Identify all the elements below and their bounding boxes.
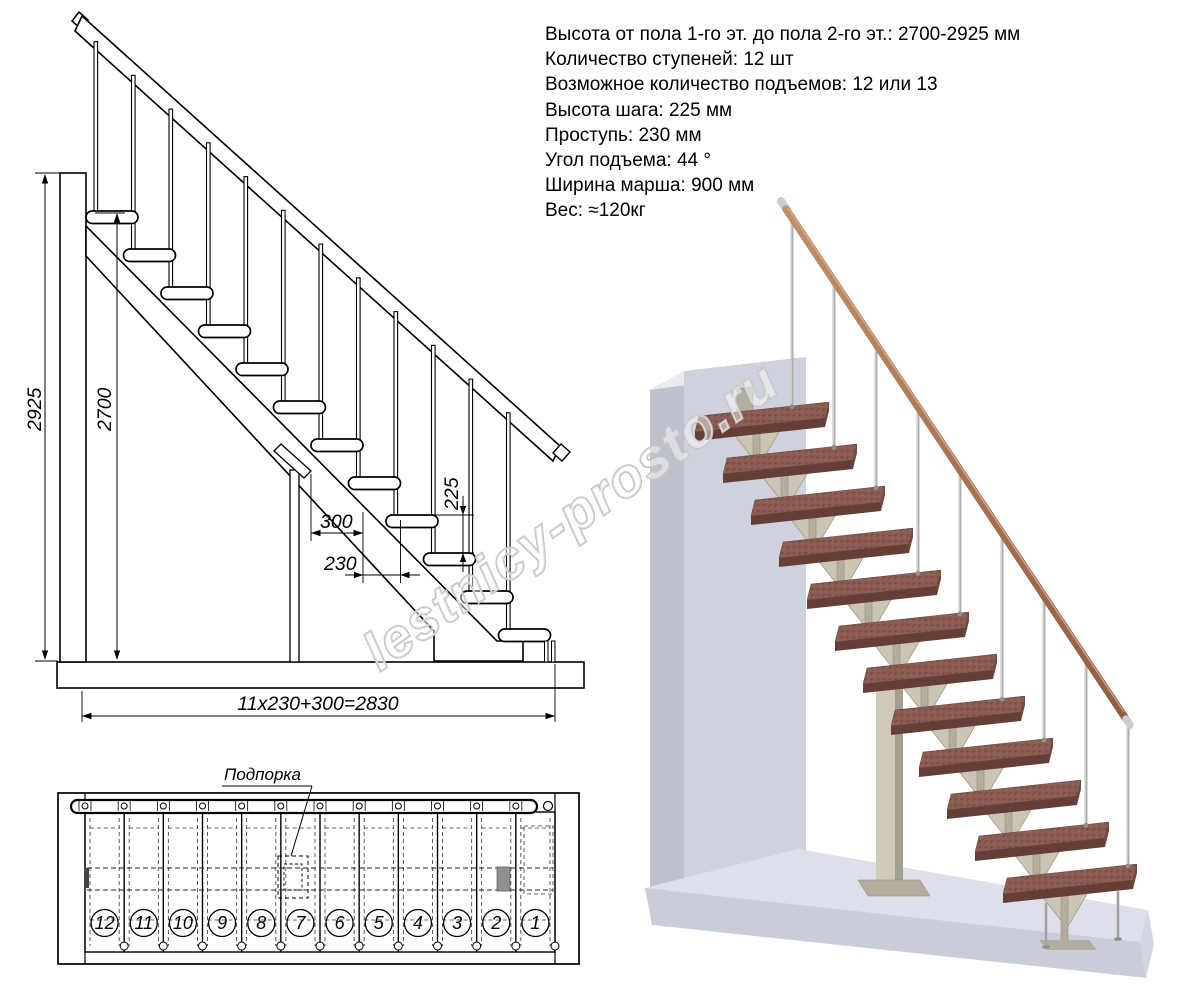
floor-base-beam <box>57 662 584 688</box>
step-number-2: 2 <box>490 913 501 933</box>
plan-bolt-mark <box>120 942 128 950</box>
plan-bolt-mark <box>473 942 481 950</box>
step-number-8: 8 <box>256 913 266 933</box>
plan-baluster-mark <box>435 803 441 809</box>
specs-block: Высота от пола 1-го эт. до пола 2-го эт.… <box>545 22 1020 224</box>
elevation-side-view: 2925 2700 300 230 225 11x230+300=2830 <box>24 12 584 722</box>
dim-arrow <box>42 174 48 184</box>
staircase-drawing-page: 2925 2700 300 230 225 11x230+300=2830 По… <box>0 0 1191 993</box>
plan-bolt-mark <box>238 942 246 950</box>
baluster-foot <box>958 612 963 617</box>
left-anchor-mark <box>84 868 89 888</box>
step-2d <box>236 363 288 376</box>
plan-baluster-mark <box>356 803 362 809</box>
step-number-1: 1 <box>530 913 540 933</box>
dim-arrow <box>82 713 92 719</box>
plan-shapes <box>58 786 579 964</box>
step-2d <box>161 287 213 300</box>
baluster-foot <box>1042 738 1047 743</box>
baluster-foot <box>832 445 837 450</box>
plan-bolt-mark <box>355 942 363 950</box>
dim-arrow <box>42 651 48 661</box>
plan-baluster-mark <box>395 803 401 809</box>
render-3d-staircase <box>645 201 1154 978</box>
baluster-foot <box>790 404 795 409</box>
bottom-step-post <box>552 641 556 662</box>
dim-arrow <box>114 651 120 661</box>
elevation-shapes <box>35 12 584 722</box>
plan-baluster-mark <box>239 803 245 809</box>
step-number-11: 11 <box>134 913 153 933</box>
plan-bolt-mark <box>512 942 520 950</box>
plan-baluster-mark <box>200 803 206 809</box>
dim-floor-height-2700: 2700 <box>94 387 116 432</box>
leg-foot <box>1114 937 1122 941</box>
support-column <box>876 688 895 884</box>
spec-line-height-range: Высота от пола 1-го эт. до пола 2-го эт.… <box>545 22 1020 47</box>
dim-going-230: 230 <box>323 553 357 575</box>
spec-line-rise-height: Высота шага: 225 мм <box>545 98 1020 123</box>
step-2d <box>386 515 438 528</box>
plan-baluster-mark <box>121 803 127 809</box>
baluster-foot <box>1084 823 1089 828</box>
baluster-foot <box>1126 864 1131 869</box>
plan-baluster-mark <box>474 803 480 809</box>
mid-support-post <box>290 470 299 662</box>
dim-total-height-2925: 2925 <box>24 387 46 432</box>
step-2d <box>499 629 551 642</box>
baluster-2d <box>132 75 136 251</box>
plan-top-view: Подпорка 12 11 10 9 8 7 6 5 4 3 2 1 <box>58 765 579 964</box>
plan-bolt-mark <box>199 942 207 950</box>
spec-line-angle: Угол подъема: 44 ° <box>545 148 1020 173</box>
dim-total-run: 11x230+300=2830 <box>237 693 398 715</box>
plan-bolt-mark <box>434 942 442 950</box>
plan-bolt-mark <box>394 942 402 950</box>
spec-line-width: Ширина марша: 900 мм <box>545 173 1020 198</box>
baluster-foot <box>874 486 879 491</box>
baluster-foot <box>916 571 921 576</box>
step-2d <box>311 439 363 452</box>
plan-bolt-mark <box>159 942 167 950</box>
step-number-7: 7 <box>295 913 306 933</box>
handrail-2d <box>75 16 560 461</box>
spec-line-rises-count: Возможное количество подъемов: 12 или 13 <box>545 72 1020 97</box>
plan-bolt-mark <box>316 942 324 950</box>
plan-baluster-mark <box>317 803 323 809</box>
baluster-foot <box>1000 697 1005 702</box>
step-number-10: 10 <box>173 913 193 933</box>
plan-baluster-mark <box>278 803 284 809</box>
step-number-3: 3 <box>452 913 462 933</box>
dim-arrow <box>546 713 556 719</box>
step-number-9: 9 <box>217 913 227 933</box>
step-2d <box>124 249 176 262</box>
upper-floor-column <box>60 173 86 662</box>
bottom-post-footprint <box>497 867 510 891</box>
plan-baluster-mark <box>82 803 88 809</box>
dim-rise-225: 225 <box>441 477 463 511</box>
plan-baluster-mark <box>160 803 166 809</box>
spec-line-steps-count: Количество ступеней: 12 шт <box>545 47 1020 72</box>
plan-bolt-mark <box>277 942 285 950</box>
handrail-bottom-cap <box>1126 719 1130 725</box>
column-base-plate <box>858 880 930 896</box>
spec-line-tread: Проступь: 230 мм <box>545 123 1020 148</box>
baluster-2d <box>94 42 98 213</box>
plan-bolt-mark <box>551 942 559 950</box>
plan-baluster-mark <box>513 803 519 809</box>
step-number-4: 4 <box>413 913 423 933</box>
render-3d-shapes <box>645 201 1154 978</box>
step-number-5: 5 <box>374 913 385 933</box>
step-2d <box>274 401 326 414</box>
spec-line-weight: Вес: ≈120кг <box>545 198 1020 223</box>
bottom-step-post <box>545 641 549 662</box>
step-number-12: 12 <box>95 913 115 933</box>
leg-foot <box>1042 945 1050 949</box>
plan-rail-end-post <box>544 802 553 811</box>
step-number-6: 6 <box>335 913 346 933</box>
dim-tread-length-300: 300 <box>320 511 353 533</box>
support-label: Подпорка <box>224 765 301 784</box>
step-2d <box>199 325 251 338</box>
step-2d <box>349 477 401 490</box>
